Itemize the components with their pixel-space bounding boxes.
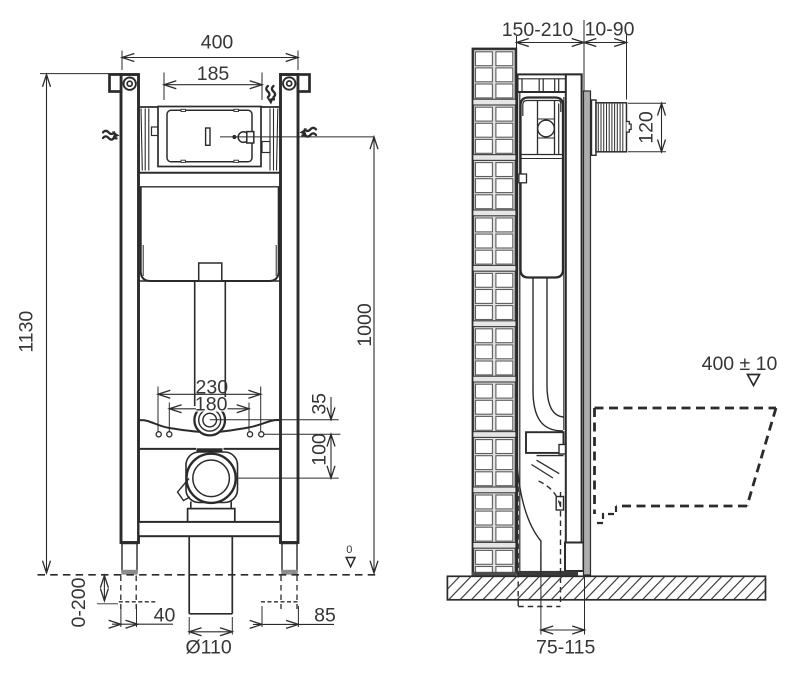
svg-text:85: 85: [314, 605, 336, 627]
svg-text:35: 35: [309, 393, 331, 415]
svg-text:10-90: 10-90: [585, 19, 635, 41]
svg-text:400: 400: [201, 32, 234, 54]
svg-text:Ø110: Ø110: [185, 637, 231, 659]
svg-text:400 ± 10: 400 ± 10: [702, 353, 778, 375]
svg-text:75-115: 75-115: [536, 637, 595, 659]
svg-text:0-200: 0-200: [68, 577, 90, 627]
svg-text:185: 185: [197, 63, 230, 85]
svg-text:150-210: 150-210: [502, 19, 574, 41]
svg-text:180: 180: [195, 394, 228, 416]
svg-text:40: 40: [154, 605, 176, 627]
svg-text:1130: 1130: [16, 311, 38, 353]
svg-text:120: 120: [636, 111, 658, 144]
svg-text:100: 100: [309, 433, 331, 466]
svg-text:1000: 1000: [354, 303, 376, 347]
svg-text:0: 0: [346, 544, 352, 556]
